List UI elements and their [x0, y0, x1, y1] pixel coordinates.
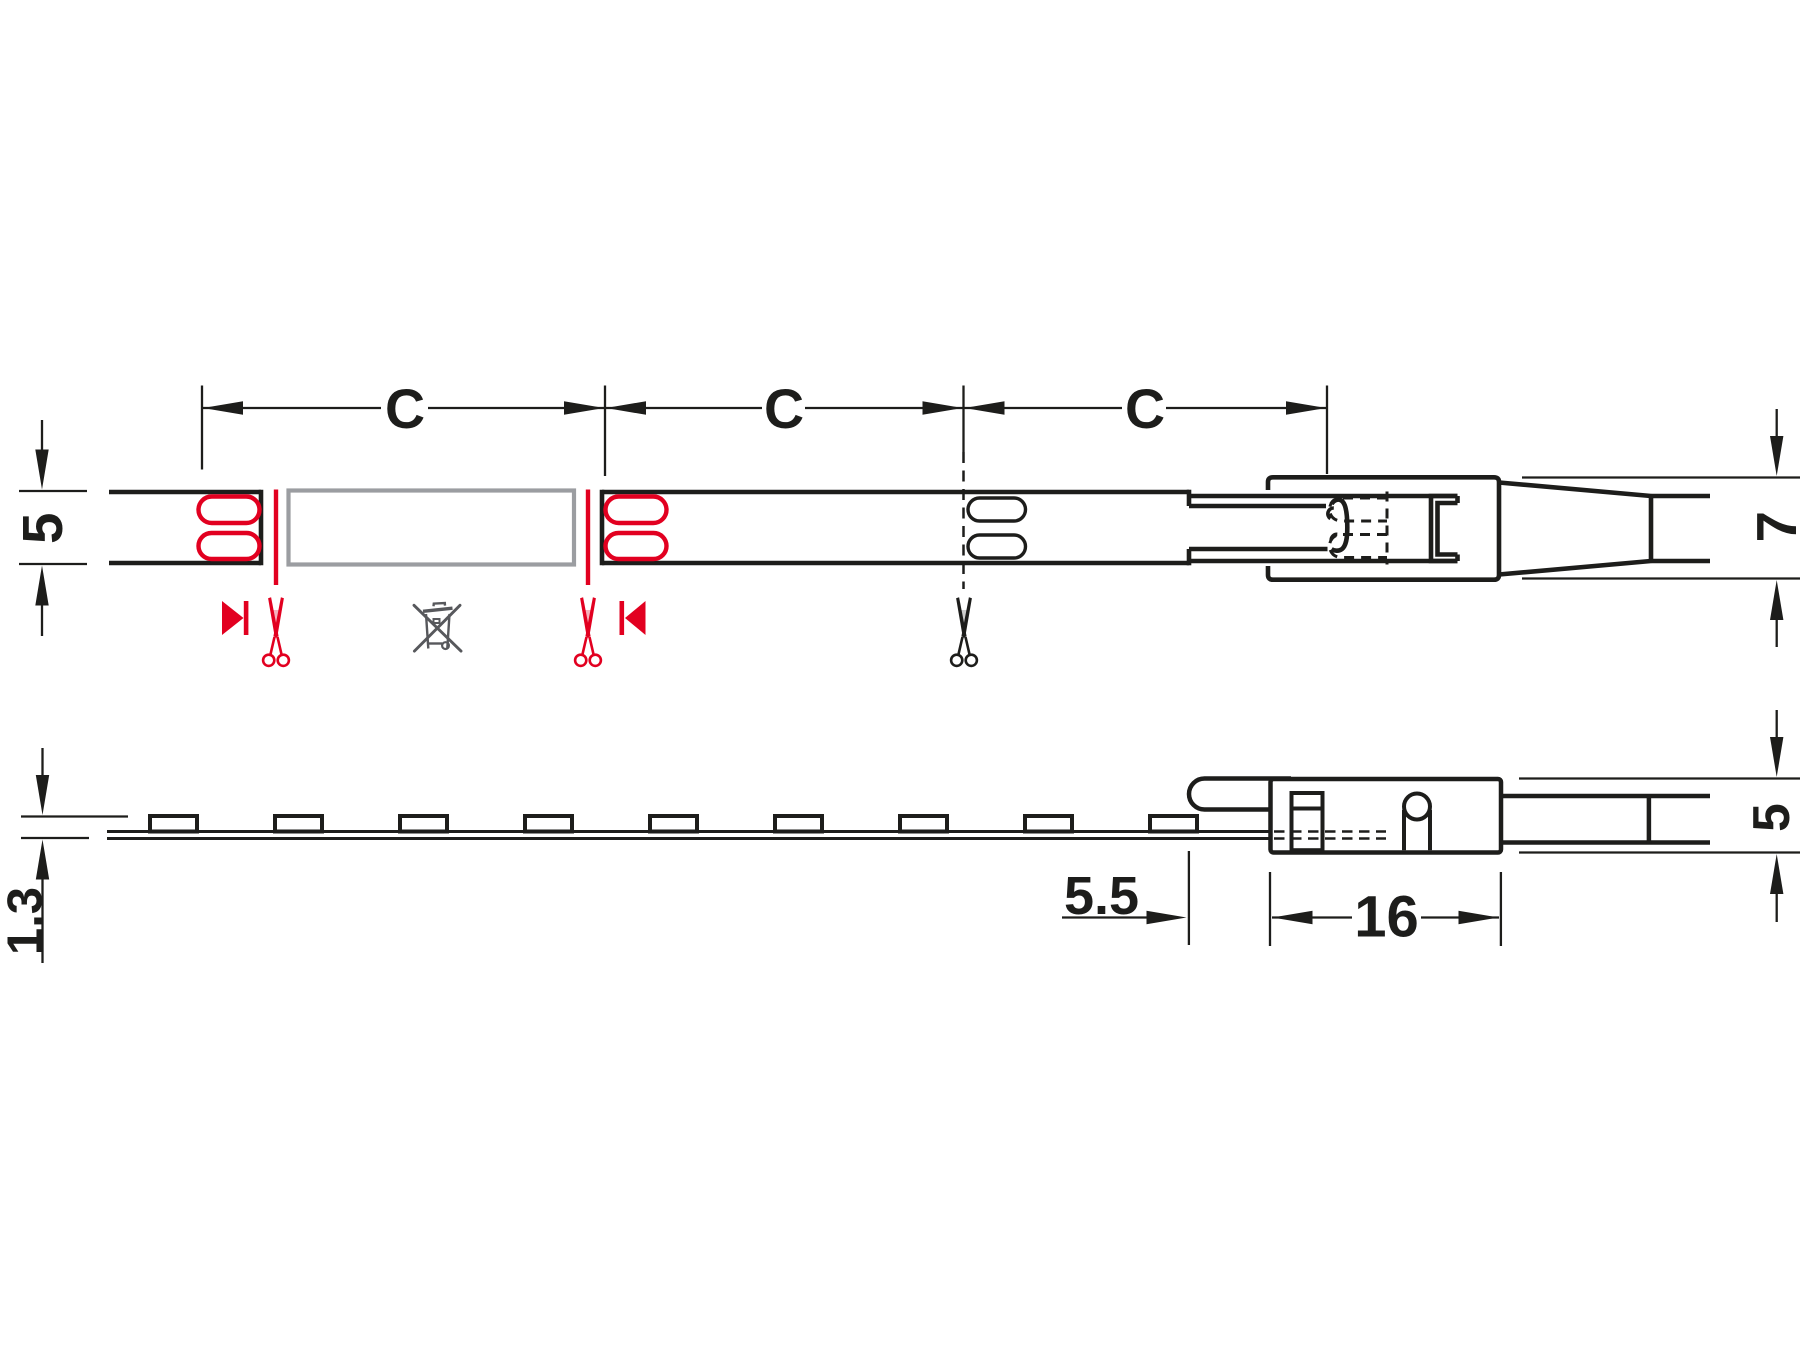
svg-text:16: 16 [1354, 885, 1419, 950]
svg-text:C: C [385, 378, 425, 440]
svg-text:5: 5 [1742, 803, 1800, 832]
svg-text:1.3: 1.3 [0, 887, 52, 955]
svg-text:C: C [1125, 378, 1165, 440]
svg-text:5: 5 [11, 513, 74, 544]
svg-text:5.5: 5.5 [1064, 866, 1139, 926]
svg-text:7: 7 [1745, 511, 1800, 542]
svg-text:C: C [764, 378, 804, 440]
